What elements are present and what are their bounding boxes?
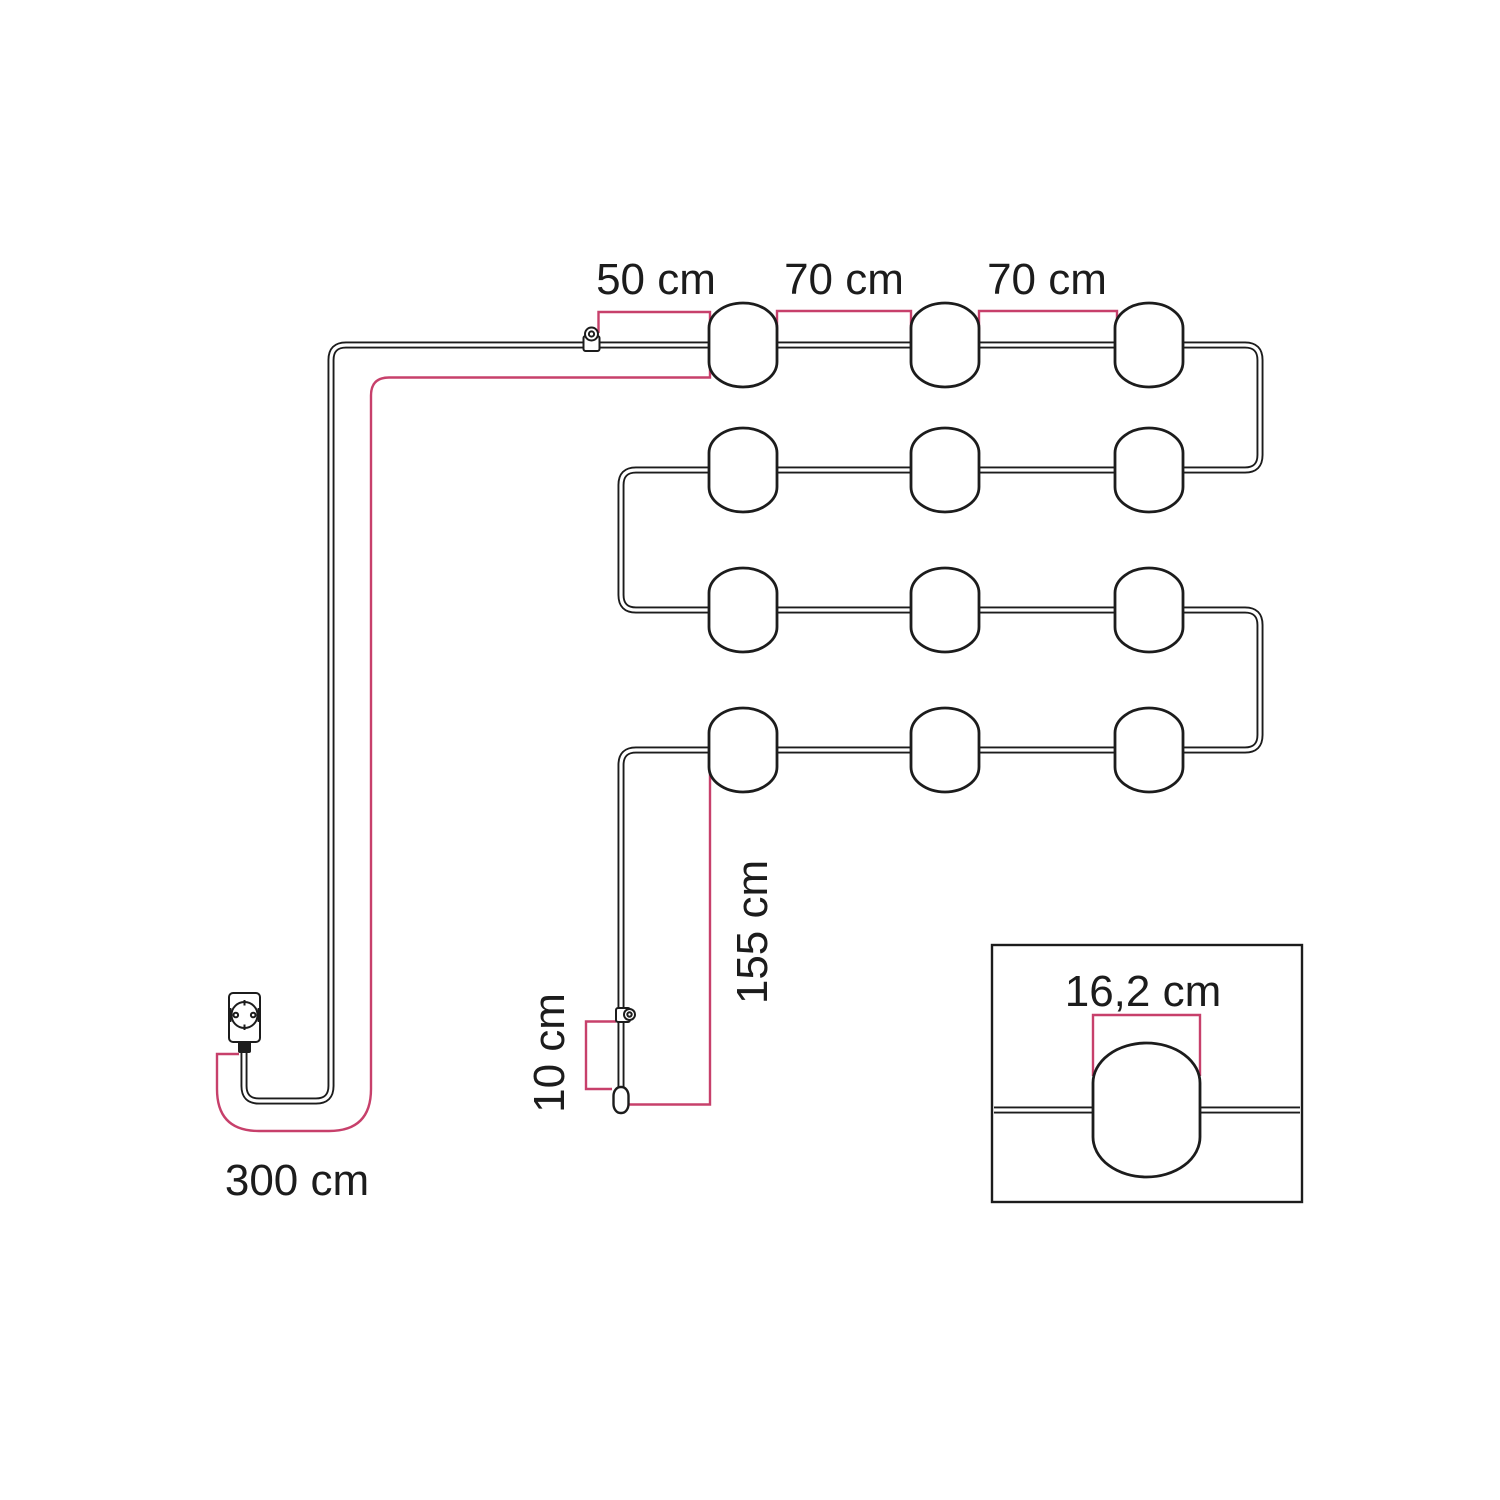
string-lights-measurement-diagram: 50 cm 70 cm 70 cm 300 cm 155 cm 10 cm 16… <box>0 0 1500 1500</box>
bracket-10cm <box>586 1022 616 1090</box>
bracket-155cm <box>629 773 710 1105</box>
lamp-bulb <box>709 568 777 652</box>
lamp-grid <box>709 303 1183 792</box>
lamp-bulb <box>709 428 777 512</box>
hook-ring <box>624 1009 635 1020</box>
lamp-bulb <box>1115 303 1183 387</box>
plug-side-clip-left <box>228 1008 231 1022</box>
lamp-bulb <box>911 303 979 387</box>
dimension-lines <box>217 311 1117 1131</box>
bracket-70cm-1 <box>777 311 911 342</box>
lamp-bulb <box>911 428 979 512</box>
label-50cm: 50 cm <box>596 255 716 304</box>
lamp-bulb <box>709 303 777 387</box>
lamp-bulb <box>911 568 979 652</box>
eyelet-hook-icon <box>584 328 600 352</box>
label-10cm: 10 cm <box>525 993 574 1113</box>
eyelet-hook-icon <box>616 1008 635 1022</box>
label-155cm: 155 cm <box>728 860 777 1004</box>
label-70cm-1: 70 cm <box>784 255 904 304</box>
label-70cm-2: 70 cm <box>987 255 1107 304</box>
lamp-bulb <box>709 708 777 792</box>
label-16-2cm: 16,2 cm <box>1065 967 1222 1016</box>
schuko-plug-icon <box>228 993 261 1053</box>
lamp-bulb-detail <box>1093 1043 1200 1177</box>
diagram-page: 50 cm 70 cm 70 cm 300 cm 155 cm 10 cm 16… <box>0 0 1500 1500</box>
hook-ring <box>585 328 598 341</box>
lamp-bulb <box>1115 568 1183 652</box>
plug-side-clip-right <box>258 1008 261 1022</box>
label-300cm: 300 cm <box>225 1156 369 1205</box>
lamp-bulb <box>1115 708 1183 792</box>
cable-end-cap-icon <box>614 1087 629 1113</box>
power-cord-trace-and-50cm-bracket <box>217 312 710 1131</box>
lamp-bulb <box>911 708 979 792</box>
lamp-bulb <box>1115 428 1183 512</box>
bracket-70cm-2 <box>979 311 1117 342</box>
